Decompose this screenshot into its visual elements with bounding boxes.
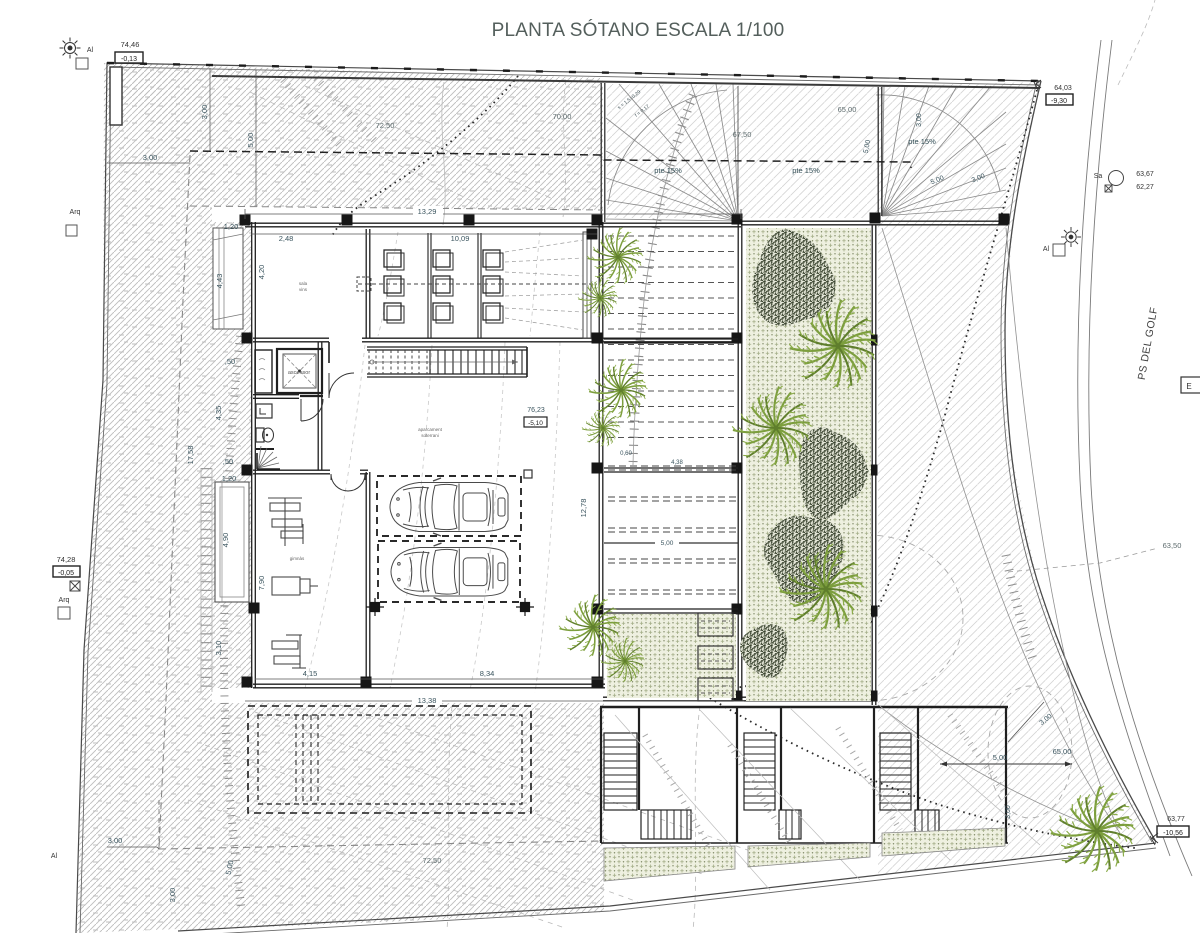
svg-text:pte 15%: pte 15% [908,137,936,146]
svg-text:pte 15%: pte 15% [654,166,682,175]
svg-text:PLANTA SÓTANO ESCALA 1/100: PLANTA SÓTANO ESCALA 1/100 [492,19,785,41]
svg-text:sala: sala [299,281,308,286]
svg-text:-0,05: -0,05 [58,570,74,577]
svg-text:pte 15%: pte 15% [792,166,820,175]
svg-text:4,90: 4,90 [221,533,230,548]
svg-text:vins: vins [299,287,308,292]
svg-text:63,50: 63,50 [1163,541,1182,550]
svg-text:Sa: Sa [1094,173,1103,180]
svg-text:,50: ,50 [225,357,235,366]
svg-text:4,35: 4,35 [214,406,223,421]
svg-text:4,43: 4,43 [215,274,224,289]
svg-text:65,00: 65,00 [838,105,857,114]
svg-text:67,50: 67,50 [733,130,752,139]
svg-text:ascensor: ascensor [288,370,310,376]
svg-text:5,00: 5,00 [661,540,674,547]
svg-text:gimnàs: gimnàs [290,556,305,561]
svg-text:76,23: 76,23 [527,407,545,414]
svg-text:72,50: 72,50 [423,856,442,865]
svg-text:5,00: 5,00 [993,753,1008,762]
svg-text:3,00: 3,00 [168,888,177,903]
svg-text:12,78: 12,78 [579,499,588,518]
svg-text:4,38: 4,38 [671,460,683,466]
svg-text:10,09: 10,09 [451,234,470,243]
svg-text:-9,30: -9,30 [1051,98,1067,105]
svg-text:74,28: 74,28 [57,555,76,564]
svg-text:1,20: 1,20 [222,474,237,483]
svg-text:7,90: 7,90 [257,576,266,591]
svg-text:0,60: 0,60 [620,451,632,457]
svg-text:-10,56: -10,56 [1163,830,1183,837]
svg-text:70,00: 70,00 [553,112,572,121]
svg-text:4,15: 4,15 [303,669,318,678]
svg-text:5,00: 5,00 [246,133,255,148]
svg-text:62,27: 62,27 [1136,184,1154,191]
svg-text:Al: Al [1043,246,1050,253]
svg-text:-0,13: -0,13 [121,56,137,63]
svg-text:3,10: 3,10 [214,641,223,656]
svg-text:72,50: 72,50 [376,121,395,130]
svg-text:65,00: 65,00 [1053,747,1072,756]
svg-text:1,20: 1,20 [224,222,239,231]
svg-text:soterrani: soterrani [421,433,439,438]
svg-text:,50: ,50 [223,457,233,466]
svg-text:aparcament: aparcament [418,427,443,432]
svg-text:4,20: 4,20 [257,265,266,280]
svg-text:Al: Al [87,47,94,54]
svg-text:3,00: 3,00 [200,105,209,120]
svg-text:2,48: 2,48 [279,234,294,243]
svg-text:3,00: 3,00 [1005,805,1012,819]
svg-text:3,00: 3,00 [143,153,158,162]
svg-text:64,03: 64,03 [1054,85,1072,92]
svg-text:Al: Al [51,853,58,860]
svg-text:17,58: 17,58 [186,446,195,465]
svg-text:-5,10: -5,10 [528,420,543,427]
svg-text:3,00: 3,00 [916,113,923,127]
svg-text:E: E [1186,382,1191,391]
svg-text:8,34: 8,34 [480,669,495,678]
svg-text:74,46: 74,46 [121,40,140,49]
svg-text:63,67: 63,67 [1136,171,1154,178]
svg-text:13,29: 13,29 [418,207,437,216]
svg-text:13,38: 13,38 [418,696,437,705]
svg-text:3,00: 3,00 [108,836,123,845]
svg-text:Arq: Arq [59,597,70,604]
svg-text:63,77: 63,77 [1167,816,1185,823]
svg-text:Arq: Arq [70,209,81,216]
